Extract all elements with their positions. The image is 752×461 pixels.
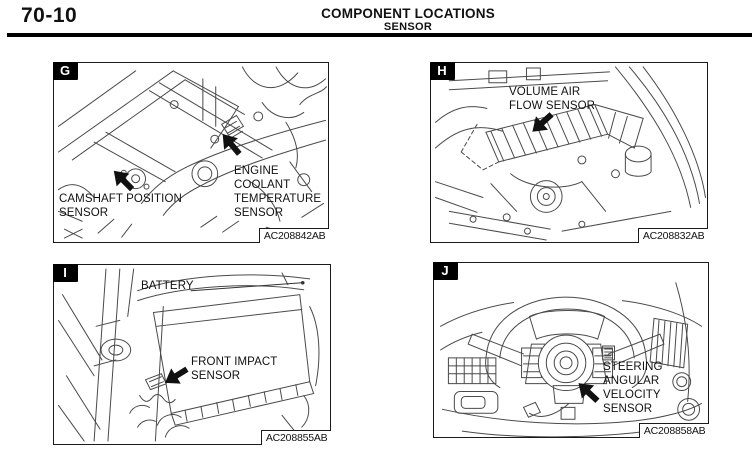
panel-letter-badge: G bbox=[53, 62, 78, 80]
label-battery: BATTERY bbox=[141, 279, 194, 293]
panel-letter: H bbox=[437, 63, 446, 78]
header-rule bbox=[7, 33, 752, 37]
figure-code: AC208832AB bbox=[638, 228, 708, 243]
panel-i: I BATTERY FRONT IMPACT SENSOR AC208855AB bbox=[53, 264, 331, 445]
label-camshaft-position-sensor: CAMSHAFT POSITION SENSOR bbox=[59, 192, 182, 220]
panel-letter-badge: I bbox=[53, 264, 78, 282]
page-header: COMPONENT LOCATIONS SENSOR bbox=[321, 6, 495, 34]
panel-letter: G bbox=[60, 63, 70, 78]
panel-letter: I bbox=[63, 265, 67, 280]
page-title: COMPONENT LOCATIONS bbox=[321, 6, 495, 21]
label-front-impact-sensor: FRONT IMPACT SENSOR bbox=[191, 355, 277, 383]
panel-letter: J bbox=[441, 263, 448, 278]
panel-g: G CAMSHAFT POSITION SENSOR ENGINE COOLAN… bbox=[53, 62, 329, 243]
figure-code: AC208855AB bbox=[261, 430, 331, 445]
panel-j: J STEERING ANGULAR VELOCITY SENSOR AC208… bbox=[433, 262, 709, 438]
panel-letter-badge: H bbox=[430, 62, 455, 80]
panel-letter-badge: J bbox=[433, 262, 458, 280]
label-engine-coolant-temperature-sensor: ENGINE COOLANT TEMPERATURE SENSOR bbox=[234, 164, 321, 220]
figure-code: AC208858AB bbox=[639, 423, 709, 438]
manual-page: 70-10 COMPONENT LOCATIONS SENSOR bbox=[0, 0, 752, 461]
steering-wheel-dashboard-line-art bbox=[434, 263, 708, 437]
label-volume-air-flow-sensor: VOLUME AIR FLOW SENSOR bbox=[509, 85, 595, 113]
panel-h: H VOLUME AIR FLOW SENSOR AC208832AB bbox=[430, 62, 708, 243]
page-number: 70-10 bbox=[21, 4, 77, 28]
figure-code: AC208842AB bbox=[259, 228, 329, 243]
label-steering-angular-velocity-sensor: STEERING ANGULAR VELOCITY SENSOR bbox=[603, 360, 663, 416]
